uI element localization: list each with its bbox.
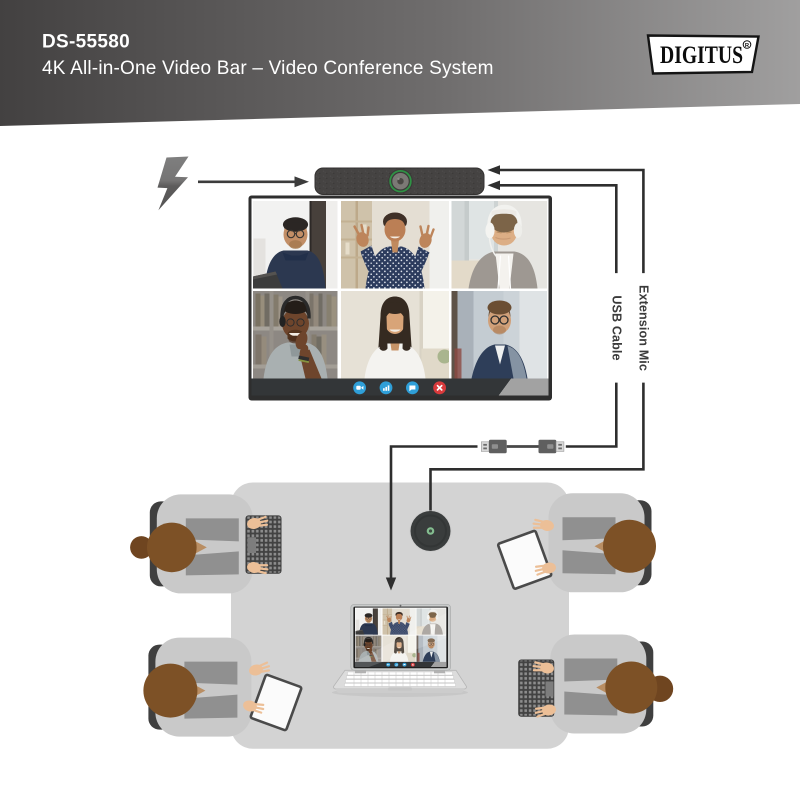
- svg-text:DS-55580: DS-55580: [42, 32, 130, 53]
- svg-text:DIGITUS: DIGITUS: [660, 42, 743, 69]
- svg-text:Extension Mic: Extension Mic: [636, 285, 650, 371]
- svg-text:USB Cable: USB Cable: [609, 295, 623, 360]
- svg-text:4K All-in-One Video Bar – Vide: 4K All-in-One Video Bar – Video Conferen…: [42, 58, 494, 79]
